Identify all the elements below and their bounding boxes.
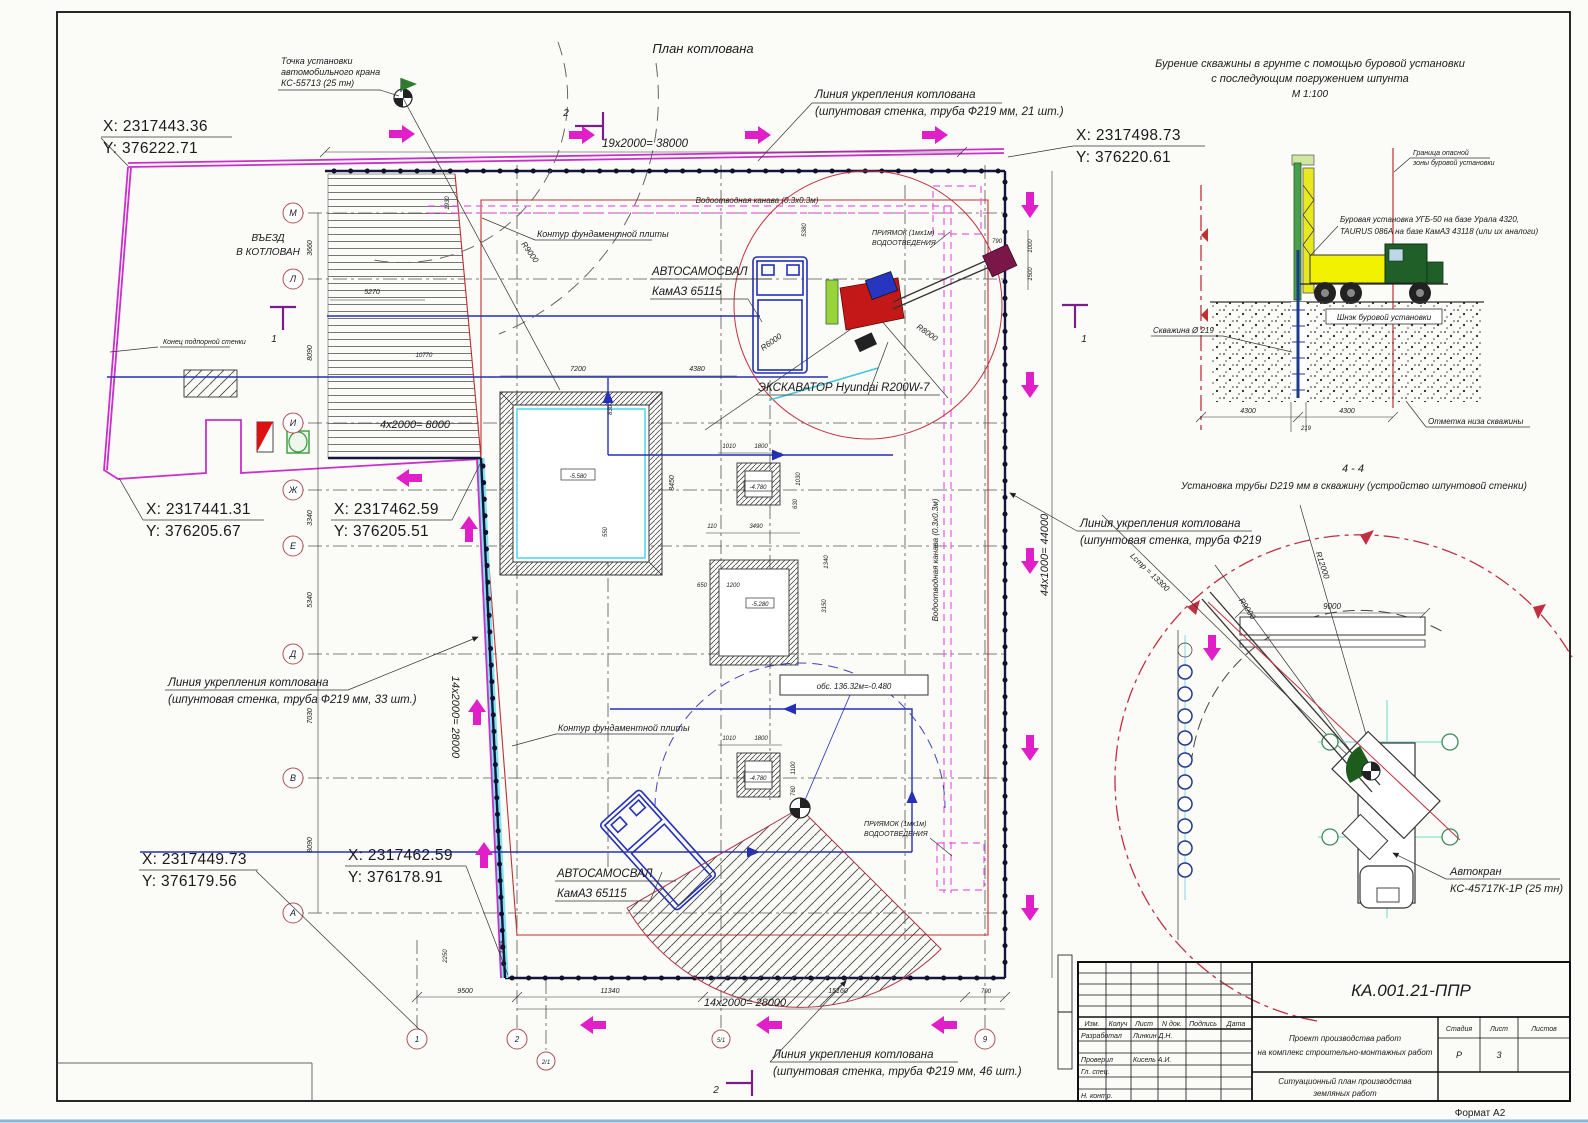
dump-truck-1 <box>753 257 807 373</box>
dim-text: 5380 <box>802 223 808 237</box>
sheet-pile-row <box>1178 630 1192 940</box>
dim-text: 1800 <box>754 736 768 742</box>
tb-name: Кисель А.И. <box>1133 1057 1171 1064</box>
tb-role: Проверил <box>1081 1057 1113 1064</box>
dim-text: 3490 <box>749 524 763 530</box>
sump-label: ВОДООТВЕДЕНИЯ <box>872 240 936 247</box>
crane-point-label: Точка установки <box>281 56 353 66</box>
dim-text: 1405 <box>500 940 506 954</box>
tb-doc-title: земляных работ <box>1312 1089 1377 1098</box>
coord-callout: X: 2317462.59 <box>348 847 453 864</box>
dim-text: 2250 <box>443 949 449 964</box>
coord-callout: X: 2317449.73 <box>142 851 247 868</box>
dim-text: 830 <box>608 404 614 415</box>
dim-text: 9500 <box>457 988 473 995</box>
axis-letter: В <box>290 773 296 783</box>
tb-stage-value: 3 <box>1496 1050 1501 1060</box>
pit-elevation: -4.780 <box>749 776 767 782</box>
danger-zone-label: Граница опасной <box>1413 149 1469 157</box>
dim-text: 1010 <box>722 444 736 450</box>
dim-text: 790 <box>981 989 992 995</box>
axis-letter: Ж <box>288 485 298 495</box>
excavation-plan: План котлована Точка установки автомобил… <box>101 41 1262 1096</box>
axis-letter: А <box>289 908 296 918</box>
dim-text: 1340 <box>824 555 830 569</box>
danger-zone-label: зоны буровой установки <box>1412 159 1495 167</box>
format-label: Формат А2 <box>1455 1108 1506 1119</box>
canal-label: Водоотводная канава (0.3х0.3м) <box>931 498 940 621</box>
axis-number: 1 <box>415 1035 419 1044</box>
dim-text: 5340 <box>307 592 314 608</box>
dim-text: 4300 <box>1240 408 1256 415</box>
tb-header: Изм. <box>1085 1021 1100 1028</box>
radius-label: R9000 <box>519 240 540 265</box>
dim-text: 1030 <box>796 472 802 486</box>
dump-truck-label: АВТОСАМОСВАЛ <box>651 266 748 278</box>
tb-stage-header: Листов <box>1530 1026 1557 1033</box>
foundation-label: Контур фундаментной плиты <box>558 723 690 733</box>
reinforcement-label-left: (шпунтовая стенка, труба Ф219 мм, 33 шт.… <box>168 694 417 706</box>
radius-label: R8000 <box>915 322 940 343</box>
coord-callout: X: 2317462.59 <box>334 501 439 518</box>
pit-elevation: -4.780 <box>749 485 767 491</box>
crane-label: Автокран <box>1449 866 1502 878</box>
well-symbol <box>287 431 309 453</box>
dim-text: 1200 <box>726 583 740 589</box>
lifted-beam <box>1235 608 1430 647</box>
dim-text: 10770 <box>416 353 433 359</box>
entrance-label: ВЪЕЗД <box>251 233 284 244</box>
dim-text: 1500 <box>1028 267 1034 281</box>
coord-callout: X: 2317441.31 <box>146 501 251 518</box>
dim-text: 5270 <box>364 289 380 296</box>
section-marker-label: 2 <box>562 108 569 119</box>
axis-number: 9 <box>983 1035 988 1044</box>
borehole-label: Скважина Ø 219 <box>1153 326 1214 335</box>
tb-header: Колуч <box>1109 1021 1128 1028</box>
section-title: 4 - 4 <box>1342 463 1364 475</box>
drawing-sheet: План котлована Точка установки автомобил… <box>0 0 1588 1123</box>
coord-callout: X: 2317443.36 <box>103 118 208 135</box>
axis-letter: И <box>290 418 297 428</box>
auger-label: Шнэк буровой установки <box>1337 313 1432 322</box>
coord-callout: X: 2317498.73 <box>1076 127 1181 144</box>
reinforcement-label-right: Линия укрепления котлована <box>1079 518 1241 530</box>
entrance-label: В КОТЛОВАН <box>236 247 300 258</box>
section-marker-label: 1 <box>1081 334 1087 345</box>
tb-header: N док. <box>1162 1020 1182 1028</box>
wall-end-label: Конец подпорной стенки <box>163 338 246 346</box>
storage-area <box>184 370 237 397</box>
coord-callout: Y: 376205.51 <box>334 523 429 540</box>
bottom-mark-label: Отметка низа скважины <box>1428 417 1523 426</box>
coord-callout: Y: 376178.91 <box>348 869 443 886</box>
dim-text: 790 <box>992 239 1003 245</box>
tb-role: Гл. спец. <box>1081 1069 1110 1076</box>
dim-text: 14х2000= 28000 <box>704 997 787 1009</box>
dump-truck-label: АВТОСАМОСВАЛ <box>556 868 653 880</box>
reinforcement-label-bottom: (шпунтовая стенка, труба Ф219 мм, 46 шт.… <box>773 1066 1022 1078</box>
section-marker-label: 1 <box>271 334 277 345</box>
tb-stage-header: Лист <box>1489 1026 1508 1033</box>
reinforcement-label-top: (шпунтовая стенка, труба Ф219 мм, 21 шт.… <box>815 106 1064 118</box>
coord-callout: Y: 376222.71 <box>103 140 198 157</box>
radius-label: R6000 <box>759 331 784 352</box>
dim-text: 630 <box>793 498 799 509</box>
foundation-label: Контур фундаментной плиты <box>537 229 669 239</box>
dim-text: 110 <box>707 524 717 530</box>
boom-length-label: Lстр = 13300 <box>1128 551 1171 593</box>
tb-stage-value: Р <box>1456 1050 1462 1060</box>
dim-text: 7030 <box>307 708 314 724</box>
dim-text: 44х1000= 44000 <box>1039 513 1051 596</box>
coord-callout: Y: 376220.61 <box>1076 149 1171 166</box>
radius-label: R12000 <box>1314 551 1331 581</box>
dim-text: 1000 <box>1028 239 1034 253</box>
rig-label: Буровая установка УГБ-50 на базе Урала 4… <box>1340 215 1519 224</box>
dim-text: 550 <box>603 526 609 537</box>
tb-header: Дата <box>1226 1021 1246 1028</box>
tb-header: Лист <box>1134 1021 1153 1028</box>
drainage-sump-top <box>933 186 981 234</box>
axis-letter: Л <box>289 274 297 284</box>
axis-number: 2 <box>514 1035 520 1044</box>
axis-letter: Д <box>289 649 297 659</box>
dim-text: 650 <box>697 583 708 589</box>
dim-text: 9000 <box>1323 602 1341 611</box>
dim-text: 4х2000= 8000 <box>380 419 451 431</box>
tb-role: Разработал <box>1081 1032 1122 1040</box>
coord-callout: Y: 376179.56 <box>142 873 237 890</box>
dim-text: 4300 <box>1339 408 1355 415</box>
dim-text: 1100 <box>791 761 797 775</box>
dim-text: 8090 <box>307 345 314 361</box>
reinforcement-label-right: (шпунтовая стенка, труба Ф219 <box>1080 535 1262 547</box>
reinforcement-label-bottom: Линия укрепления котлована <box>772 1049 934 1061</box>
dim-text: 7200 <box>570 366 586 373</box>
dim-text: 8090 <box>307 837 314 853</box>
drilling-title: Бурение скважины в грунте с помощью буро… <box>1155 58 1465 70</box>
crane-point-label: автомобильного крана <box>281 67 380 77</box>
axis-letter: М <box>289 208 297 218</box>
section-title: Установка трубы D219 мм в скважину (устр… <box>1180 480 1527 492</box>
coord-callout: Y: 376205.67 <box>146 523 241 540</box>
dim-text: 19х2000= 38000 <box>602 138 689 150</box>
tb-stage-header: Стадия <box>1446 1025 1472 1033</box>
document-number: КА.001.21-ППР <box>1351 981 1471 1000</box>
excavator-label: ЭКСКАВАТОР Hyundai R200W-7 <box>758 382 930 394</box>
axis-number: 5/1 <box>717 1038 725 1044</box>
dim-text: 15160 <box>828 988 848 995</box>
tb-role: Н. контр. <box>1081 1093 1113 1100</box>
tb-header: Подпись <box>1189 1020 1217 1028</box>
dim-text: 3340 <box>307 510 314 526</box>
sump-label: ВОДООТВЕДЕНИЯ <box>864 831 928 838</box>
dim-text: 1800 <box>754 444 768 450</box>
section-marker-label: 2 <box>712 1085 719 1096</box>
dim-text: 8450 <box>669 475 676 491</box>
dim-text: 3660 <box>307 240 314 256</box>
axis-letter: Е <box>290 541 297 551</box>
reinforcement-label-top: Линия укрепления котлована <box>814 89 976 101</box>
dim-text: 11340 <box>601 988 620 995</box>
drilling-section: Бурение скважины в грунте с помощью буро… <box>1151 58 1538 432</box>
tb-project: Проект производства работ <box>1289 1034 1401 1043</box>
canal-label: Водоотводная канава (0.3х0.3м) <box>696 196 819 205</box>
drilling-title: с последующим погружением шпунта <box>1211 73 1409 85</box>
dim-text: 4380 <box>689 366 705 373</box>
dump-truck-label: КамАЗ 65115 <box>652 286 722 298</box>
sump-label: ПРИЯМОК (1мх1м) <box>864 821 926 828</box>
tb-project: на комплекс строительно-монтажных работ <box>1258 1048 1433 1057</box>
tb-name: Линкин Д.Н. <box>1132 1033 1172 1040</box>
title-block: КА.001.21-ППР Изм. Колуч Лист N док. Под… <box>1078 962 1570 1101</box>
dim-text: 760 <box>791 785 797 796</box>
pit-elevation: -5.280 <box>751 602 769 608</box>
crane-flag-icon <box>401 78 417 91</box>
elevation-note: обс. 136.32м=-0.480 <box>817 682 892 691</box>
reinforcement-label-left: Линия укрепления котлована <box>167 677 329 689</box>
dim-text: 1010 <box>722 736 736 742</box>
dim-text: 1930 <box>445 196 451 210</box>
pit-elevation: -5.580 <box>569 474 587 480</box>
dim-text: 14х2000= 28000 <box>449 676 461 759</box>
axis-number: 2/1 <box>541 1060 550 1066</box>
crane-label: КС-45717К-1Р (25 тн) <box>1450 883 1563 895</box>
dim-text: 219 <box>1300 426 1312 432</box>
rig-label: TAURUS 086A на базе КамАЗ 43118 (или их … <box>1340 227 1538 236</box>
plan-title: План котлована <box>652 41 753 56</box>
drilling-dims <box>1196 402 1398 432</box>
dump-truck-label: КамАЗ 65115 <box>557 888 627 900</box>
crane-point-label: КС-55713 (25 тн) <box>281 78 354 88</box>
entrance-sign <box>257 422 273 452</box>
sump-label: ПРИЯМОК (1мх1м) <box>872 230 934 237</box>
dim-text: 3150 <box>822 599 828 613</box>
tb-doc-title: Ситуационный план производства <box>1278 1077 1412 1086</box>
drilling-scale: М 1:100 <box>1292 89 1329 100</box>
